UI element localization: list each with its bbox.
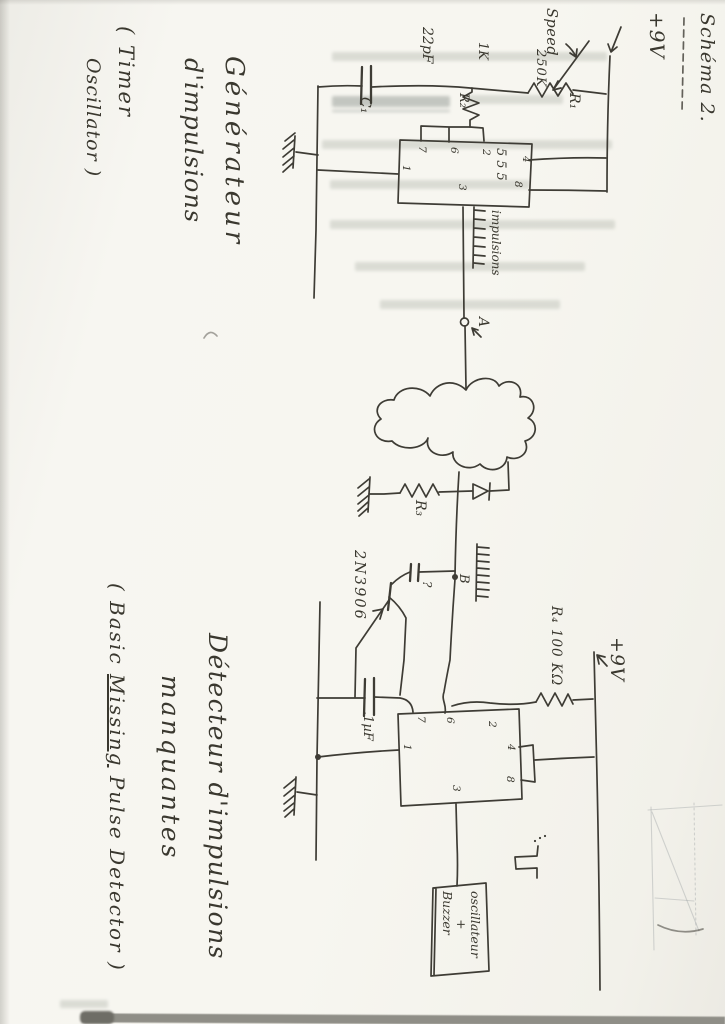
detector-subtitle: ( Basic Missing Pulse Detector ) [106,583,128,972]
generator-heading-line1: Générateur [219,56,248,247]
pencil-smudge [204,332,217,338]
r4-label: R₄ 100 KΩ [548,606,563,686]
scan-edge-left [0,0,10,1024]
generator-supply-label: +9V [646,12,668,59]
transistor-label: 2N3906 [351,550,367,621]
r2-value-label: 1K [474,42,489,60]
ic2-pin-1: 1 [400,744,412,751]
detector-heading-line2: manquantes [156,675,184,861]
node-b-label: B [455,574,470,584]
generator-heading-line3: ( Timer [113,26,137,118]
c1-value-label: 22pF [418,27,434,64]
detector-subtitle-prefix: ( Basic [105,583,129,674]
missing-pulse-glyph [515,846,538,878]
scan-edge-bottom-blob [80,1011,114,1024]
generator-heading-line4: Oscillator ) [82,58,103,177]
ic2-pin-2: 2 [485,721,497,728]
bleedthrough-corner-shape [648,803,722,950]
c1-name-label: C₁ [356,97,372,113]
ic1-pin-2: 2 [479,149,491,156]
pulse-train-2 [476,544,489,601]
detector-subtitle-suffix: Pulse Detector ) [105,767,129,971]
cloud-squiggle [375,378,536,469]
ic1-pin-3: 3 [455,184,467,191]
ic1-pin-4: 4 [519,156,531,163]
detector-supply-label: +9V [606,637,627,682]
ic2-pin-7: 7 [414,716,426,723]
scanned-schematic-page: Schéma 2. +9V Speed 250K R₁ 1K R₂ 22pF C… [0,0,725,1024]
ic1-label: 555 [492,148,507,185]
r1-value-label: 250K [532,49,547,88]
output-box-line3: Buzzer [440,891,454,958]
pulse-train-1 [473,207,485,268]
scan-edge-top [0,0,725,5]
generator-heading-line2: d'impulsions [179,58,206,223]
output-box-line2: + [454,891,468,958]
node-a-circle [461,318,469,326]
r2-name-label: R₂ [455,93,470,108]
base-cap-note: ? [420,581,433,587]
ic1-pin-6: 6 [447,147,459,154]
ic1-pin-7: 7 [415,146,427,153]
ic2-pin-4: 4 [504,744,516,751]
detector-heading-line1: Détecteur d'impulsions [203,633,231,960]
ic2-pin-6: 6 [443,717,455,724]
detector-subtitle-underlined: Missing [105,674,129,767]
diode [473,483,490,500]
output-box-line1: oscillateur [468,891,482,958]
r1-name-label: R₁ [565,93,581,109]
title-underline [682,18,684,112]
schema-title: Schéma 2. [696,13,717,123]
ic1-pin-1: 1 [399,165,411,172]
pulse-train-label: impulsions [489,210,502,276]
generator-circuit [283,27,621,388]
ic1-pin-8: 8 [511,181,523,188]
ic2-pin-3: 3 [449,785,461,792]
c2-value-label: .1µF [359,711,374,741]
ic2-pin-8: 8 [503,776,515,783]
r3-name-label: R₃ [411,500,427,516]
output-box-text: oscillateur + Buzzer [440,891,482,958]
node-a-label: A [474,317,490,327]
